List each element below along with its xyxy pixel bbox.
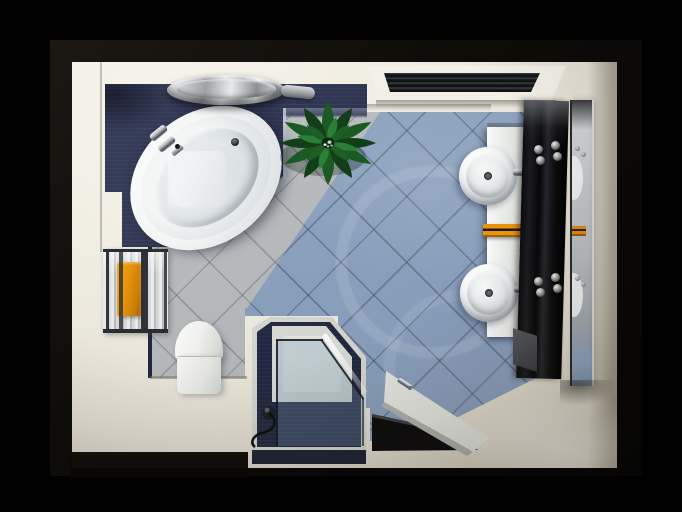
plant [268, 91, 388, 195]
toilet-body [177, 356, 221, 394]
control-knobs-bottom [533, 272, 565, 298]
radiator-rail [141, 249, 148, 333]
radiator-frame [103, 249, 168, 252]
sink-drain [485, 289, 493, 297]
knob-icon [553, 284, 562, 293]
control-knobs-top [533, 140, 565, 166]
mirror-reflection-knob [581, 152, 586, 157]
chrome-cylinder-top [176, 79, 276, 99]
faucet-base [175, 144, 180, 149]
mirror-reflection-knob [575, 276, 580, 281]
bathtub-faucet [147, 125, 187, 159]
knob-icon [534, 277, 543, 286]
bathtub-light-reflection [168, 151, 226, 207]
mirror-reflection-sink [570, 156, 583, 200]
sink-drain [484, 172, 492, 180]
knob-icon [551, 273, 560, 282]
shower-base [252, 450, 366, 464]
radiator-frame [103, 329, 168, 333]
frame-corner-shadow [70, 452, 248, 478]
glass-edge [276, 339, 323, 341]
mirror-reflection-knob [581, 282, 586, 287]
mirror-reflection-knob [575, 146, 580, 151]
panel-sheen [523, 100, 569, 145]
vessel-sink-bottom [460, 264, 518, 322]
glass-edge [362, 398, 364, 446]
radiator-rail [119, 249, 123, 333]
vessel-sink-top [459, 147, 517, 205]
mirror-reflection-towel [572, 226, 586, 236]
radiator-rail [164, 249, 167, 333]
towel-radiator [103, 249, 168, 333]
door-handle-knob [408, 386, 412, 390]
bathroom-render [0, 0, 682, 512]
knob-icon [534, 145, 543, 154]
knob-icon [536, 288, 545, 297]
shower-handset [246, 400, 282, 448]
knob-icon [553, 152, 562, 161]
knob-icon [551, 141, 560, 150]
bathtub-drain [231, 138, 239, 146]
floor-light-glow [460, 390, 617, 468]
panel-side-flap [513, 328, 537, 372]
radiator-rail [106, 249, 109, 333]
knob-icon [536, 156, 545, 165]
